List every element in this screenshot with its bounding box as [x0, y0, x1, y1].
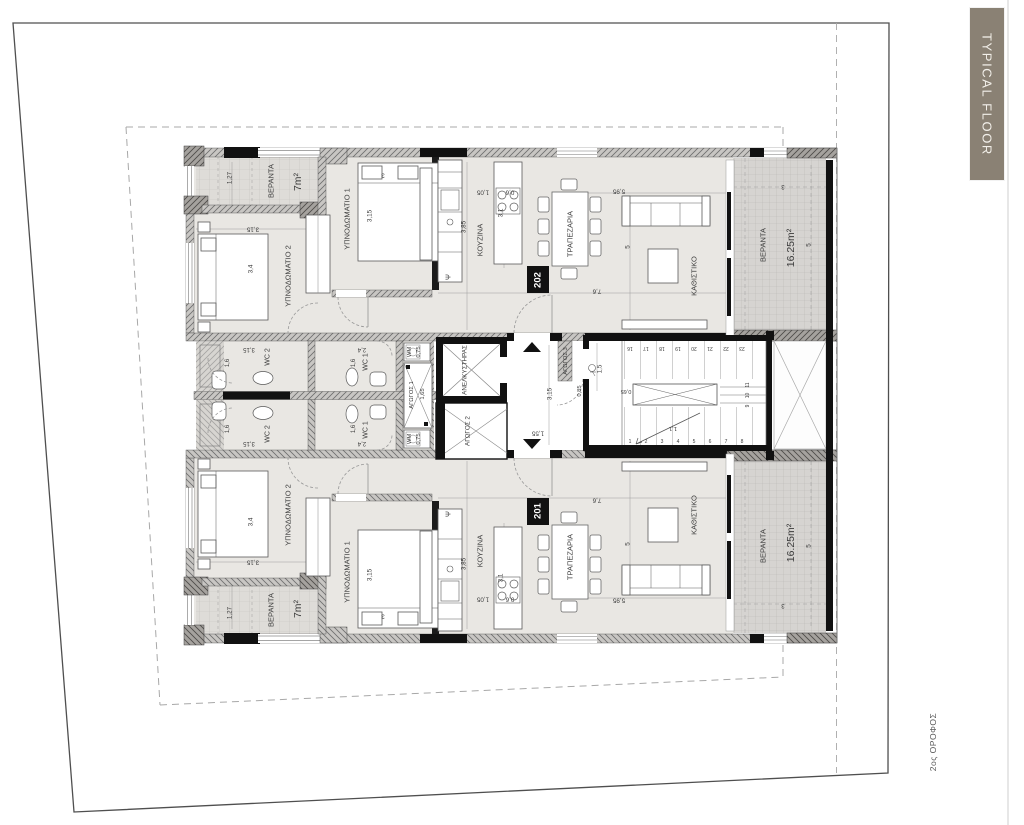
- sofa: [622, 196, 710, 226]
- stair-step: 1: [629, 439, 632, 445]
- wardrobe: [420, 168, 432, 260]
- dim: 1,6: [225, 424, 231, 433]
- floor-note: 2ος ΟΡΟΦΟΣ: [928, 702, 944, 782]
- stair-step: 21: [707, 345, 713, 351]
- dim: 0,85: [577, 385, 583, 396]
- dim: 3,15: [246, 559, 259, 566]
- duct1-label: ΑΓΩΓΟΣ 1: [409, 381, 415, 409]
- duct3-label: ΑΓΩΓΟΣ 3: [563, 347, 569, 375]
- dim: 3,15: [367, 209, 374, 222]
- apt202-wm-label: WM: [407, 347, 413, 357]
- stair-step: 3: [661, 439, 664, 445]
- stair-step: 6: [709, 439, 712, 445]
- dim: 1,05: [476, 596, 489, 603]
- apt202-wc1-label: WC 1: [363, 353, 370, 371]
- dim: 5,95: [612, 188, 625, 195]
- apt202-veranda-left-label: ΒΕΡΑΝΤΑ: [267, 164, 276, 198]
- dim: 3,4: [248, 517, 255, 526]
- wc-toilet: [370, 372, 386, 386]
- duct2-label: ΑΓΩΓΟΣ 2: [465, 416, 472, 446]
- dim: 3,15: [243, 346, 255, 352]
- stair-step: 20: [691, 345, 697, 351]
- stair-step: 2: [645, 439, 648, 445]
- coffee-table: [648, 249, 678, 283]
- stair-step: 4: [677, 439, 680, 445]
- open-shaft: [774, 337, 837, 454]
- dim: 0,75: [416, 346, 422, 357]
- stair-step: 8: [741, 439, 744, 445]
- veranda-wall: [826, 160, 833, 337]
- wc-sink: [253, 372, 273, 385]
- dim: 3,1: [498, 208, 505, 217]
- dim: 1,1: [669, 425, 677, 431]
- dim: 3,1: [498, 573, 505, 582]
- kitchen-counter: [438, 160, 462, 282]
- dim: 2,4: [357, 440, 366, 446]
- dim: 1,65: [420, 388, 426, 399]
- apt201-living-label: ΚΑΘΙΣΤΙΚΟ: [690, 495, 699, 535]
- dim: 3: [381, 613, 385, 620]
- bed: [198, 222, 268, 332]
- wc-toilet: [212, 371, 226, 389]
- elevator: [436, 337, 507, 403]
- stair-step: 16: [627, 345, 633, 351]
- kitchen-sink-psi: Ψ: [446, 274, 453, 280]
- tv-bench: [622, 320, 707, 329]
- elevator-label: ΑΝΕΛΚΥΣΤΗΡΑΣ: [462, 345, 469, 395]
- apt201-dining-label: ΤΡΑΠΕΖΑΡΙΑ: [566, 534, 575, 580]
- elevator-door: [500, 357, 507, 383]
- dim: 5: [625, 542, 632, 546]
- dim: 3,85: [461, 220, 468, 233]
- apt202-veranda-right-label: ΒΕΡΑΝΤΑ: [759, 228, 768, 262]
- drawing-sheet: ΒΕΡΑΝΤΑ7m²1,273,153,4ΥΠΝΟΔΩΜΑΤΙΟ 2ΥΠΝΟΔΩ…: [0, 0, 1024, 825]
- dim: 3,15: [243, 440, 255, 446]
- apt202-kitchen-label: ΚΟΥΖΙΝΑ: [476, 224, 485, 256]
- dim: 0,75: [416, 433, 422, 444]
- apt201-bedroom1-label: ΥΠΝΟΔΩΜΑΤΙΟ 1: [343, 541, 352, 603]
- apt201-veranda-left-label: ΒΕΡΑΝΤΑ: [267, 593, 276, 627]
- dim: 1,6: [351, 424, 357, 433]
- dim: 5: [625, 245, 632, 249]
- apt201-kitchen-label: ΚΟΥΖΙΝΑ: [476, 535, 485, 567]
- stair-step: 19: [675, 345, 681, 351]
- dim: 1,6: [225, 358, 231, 367]
- stair-step: 11: [745, 382, 751, 387]
- stair-step: 9: [745, 404, 751, 407]
- stair-step: 23: [739, 345, 745, 351]
- dim: 3: [381, 172, 385, 179]
- dim: 0,6: [505, 189, 514, 196]
- apt202-veranda-right-area: 16.25m²: [785, 228, 797, 267]
- wc-sink: [346, 368, 358, 386]
- apt202-bedroom1-label: ΥΠΝΟΔΩΜΑΤΙΟ 1: [343, 188, 352, 250]
- dim: 5: [806, 544, 813, 548]
- stair-step: 22: [723, 345, 729, 351]
- apt201-wc1-label: WC 1: [363, 421, 370, 439]
- kitchen-sink-psi: Ψ: [446, 511, 453, 517]
- typical-floor-banner: TYPICAL FLOOR: [970, 8, 1004, 180]
- wall-black-segment: [224, 147, 260, 158]
- apt202-veranda-left-area: 7m²: [292, 172, 304, 191]
- apt202-number: 202: [533, 272, 544, 288]
- dim: 0,65: [621, 388, 632, 394]
- duct-2: [436, 403, 507, 459]
- dim: 3,15: [547, 387, 554, 400]
- apt202-wc2-label: WC 2: [265, 348, 272, 366]
- dim: 1,27: [227, 171, 234, 184]
- dim: 5: [806, 243, 813, 247]
- dim: 3,15: [367, 568, 374, 581]
- dim: 7,6: [592, 497, 601, 504]
- stairwell: [583, 335, 772, 451]
- floor-plan: ΒΕΡΑΝΤΑ7m²1,273,153,4ΥΠΝΟΔΩΜΑΤΙΟ 2ΥΠΝΟΔΩ…: [0, 0, 1024, 825]
- dim: 3,15: [246, 226, 259, 233]
- apt201-bedroom2-label: ΥΠΝΟΔΩΜΑΤΙΟ 2: [284, 484, 293, 546]
- dim: 5,95: [612, 597, 625, 604]
- dim: 1,6: [351, 358, 357, 367]
- dim: 1,05: [476, 189, 489, 196]
- typical-floor-label: TYPICAL FLOOR: [980, 33, 995, 156]
- dim: 1,27: [227, 606, 234, 619]
- apt201-number: 201: [533, 502, 544, 519]
- dim: 2,4: [357, 346, 366, 352]
- dim: 0,6: [505, 596, 514, 603]
- dim: 3,85: [461, 557, 468, 570]
- apt201-veranda-right-label: ΒΕΡΑΝΤΑ: [759, 529, 768, 563]
- stair-step: 10: [745, 393, 751, 399]
- dim: 1,55: [531, 430, 544, 437]
- apt201-veranda-right-area: 16.25m²: [785, 523, 797, 562]
- apt201-veranda-left-area: 7m²: [292, 599, 304, 618]
- dim: 1,5: [597, 364, 604, 373]
- apt202-dining-label: ΤΡΑΠΕΖΑΡΙΑ: [566, 211, 575, 257]
- apt202-living-label: ΚΑΘΙΣΤΙΚΟ: [690, 256, 699, 296]
- apt201-wm-label: WM: [407, 434, 413, 444]
- stair-step: 5: [693, 439, 696, 445]
- dim: 7,6: [592, 288, 601, 295]
- stair-step: 17: [643, 345, 649, 351]
- dim: 3,4: [248, 264, 255, 273]
- apt201-wc2-label: WC 2: [265, 425, 272, 443]
- stair-step: 7: [725, 439, 728, 445]
- stair-step: 18: [659, 345, 665, 351]
- apt202-bedroom2-label: ΥΠΝΟΔΩΜΑΤΙΟ 2: [284, 245, 293, 307]
